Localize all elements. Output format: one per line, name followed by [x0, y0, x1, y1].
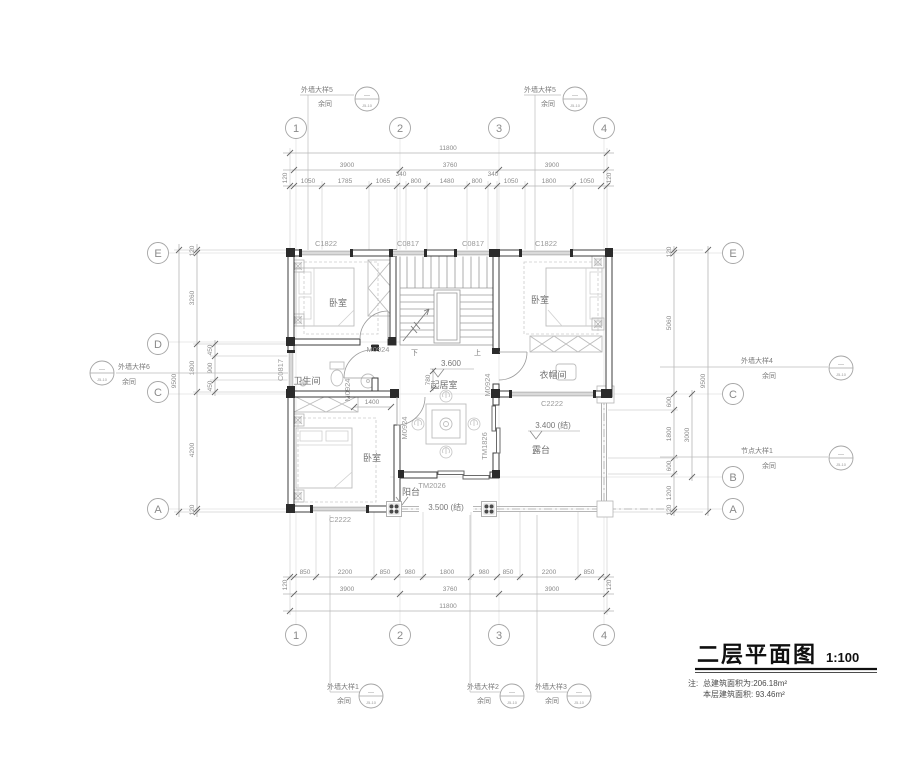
- drawing-title: 二层平面图: [697, 642, 817, 667]
- grid-row-label: A: [154, 504, 162, 516]
- notes-line1: 总建筑面积为:206.18m²: [703, 678, 787, 688]
- ref-bottom: J5-10: [507, 700, 518, 705]
- room-label-living: 起居室: [430, 379, 457, 390]
- dim-value: 1800: [542, 178, 557, 185]
- window-code: C0817: [276, 359, 285, 381]
- door-bedroom2: [499, 352, 527, 380]
- grid-row-label: E: [729, 248, 736, 260]
- dim-value: 1065: [376, 178, 391, 185]
- room-label-bedroom3: 卧室: [363, 452, 381, 463]
- dim-value: 11800: [439, 145, 457, 152]
- stair-down-label: 下: [411, 349, 418, 357]
- ref-bottom: J5-10: [836, 462, 847, 467]
- grid-col-label: 2: [397, 123, 403, 135]
- dim-value: 600: [666, 460, 673, 471]
- level-value: 3.500 (结): [428, 502, 464, 512]
- ref-bottom: J5-10: [362, 103, 373, 108]
- notes-line2: 本层建筑面积: 93.46m²: [703, 689, 785, 699]
- ref-top: —: [99, 367, 105, 373]
- notes-prefix: 注:: [688, 678, 698, 688]
- dim-value: 3900: [545, 586, 560, 593]
- dim-value: 1800: [440, 569, 455, 576]
- dim-value: 2200: [542, 569, 557, 576]
- drawing-scale: 1:100: [826, 650, 859, 665]
- dim-value: 3760: [443, 162, 458, 169]
- callout-wall4: 外墙大样4 余同 — J5-10: [660, 356, 853, 380]
- grid-row-label: B: [729, 472, 736, 484]
- grid-row-label: C: [154, 387, 162, 399]
- dim-value: 3900: [545, 162, 560, 169]
- dim-value: 120: [189, 504, 196, 515]
- door-code: M0924: [367, 345, 390, 354]
- floor-plan-drawing: 11800 3900 3760 3900 1050 1785 1065 340 …: [0, 0, 899, 762]
- callout-wall2: 外墙大样2 余同 — J5-10: [467, 515, 524, 708]
- grid-col-label: 3: [496, 630, 502, 642]
- dim-value: 120: [666, 504, 673, 515]
- room-label-terrace: 露台: [532, 444, 550, 455]
- terrace-corner-column: [597, 501, 613, 517]
- window-c1822-a: [299, 249, 353, 257]
- dim-value: 340: [488, 171, 499, 178]
- left-dimensions: 120 3260 1800 4200 120 450 900 450 9500: [171, 245, 214, 515]
- dim-value: 3760: [443, 586, 458, 593]
- callout-repeat: 余同: [337, 696, 351, 705]
- chair: [468, 418, 480, 430]
- dim-value: 450: [207, 380, 214, 391]
- room-label-bedroom2: 卧室: [531, 294, 549, 305]
- callout-repeat: 余同: [477, 696, 491, 705]
- dim-value: 120: [606, 579, 613, 590]
- wardrobe1: [368, 260, 392, 316]
- window-code: C1822: [315, 239, 337, 248]
- stair-up-label: 上: [474, 348, 481, 357]
- dim-value: 120: [282, 579, 289, 590]
- ref-bottom: J5-10: [836, 372, 847, 377]
- dim-value: 980: [405, 569, 416, 576]
- callout-wall1: 外墙大样1 余同 — J5-10: [327, 515, 383, 708]
- dim-value: 3000: [684, 427, 691, 442]
- dim-value: 1800: [666, 426, 673, 441]
- callout-repeat: 余同: [541, 99, 555, 108]
- ref-bottom: J5-10: [570, 103, 581, 108]
- grid-col-label: 1: [293, 630, 299, 642]
- dim-value: 780: [425, 374, 432, 385]
- dim-value: 800: [472, 178, 483, 185]
- window-code: C2222: [541, 399, 563, 408]
- ref-bottom: J5-10: [97, 377, 108, 382]
- dim-value: 120: [189, 245, 196, 256]
- room-label-cloakroom: 衣帽间: [539, 369, 566, 380]
- callout-label: 外墙大样2: [467, 682, 499, 691]
- window-c0817-a: [390, 249, 427, 257]
- door-code: M0924: [400, 417, 409, 440]
- grid-row-label: A: [729, 504, 737, 516]
- dim-value: 120: [282, 172, 289, 183]
- dim-value: 850: [380, 569, 391, 576]
- grid-col-label: 4: [601, 630, 607, 642]
- grid-col-label: 2: [397, 630, 403, 642]
- ornamental-column: [482, 502, 497, 517]
- window-c2222-bedroom3: [310, 505, 369, 513]
- dim-value: 2200: [338, 569, 353, 576]
- room-label-bathroom: 卫生间: [293, 375, 320, 386]
- ref-top: —: [572, 93, 578, 99]
- dim-value: 1200: [666, 485, 673, 500]
- ref-top: —: [576, 690, 582, 696]
- room-label-bedroom1: 卧室: [329, 297, 347, 308]
- callout-node1: 节点大样1 余同 — J5-10: [660, 446, 853, 470]
- chair: [440, 390, 452, 402]
- ornamental-column: [387, 502, 402, 517]
- wardrobe2: [530, 336, 602, 352]
- toilet: [330, 362, 344, 386]
- door-code: TM1826: [480, 432, 489, 460]
- dim-value: 9500: [171, 373, 178, 388]
- window-c2222-cloakroom: [509, 390, 596, 398]
- window-code: C0817: [397, 239, 419, 248]
- nightstand: [592, 256, 604, 268]
- dim-value: 3260: [189, 290, 196, 305]
- dim-value: 1480: [440, 178, 455, 185]
- callout-repeat: 余同: [545, 696, 559, 705]
- callout-label: 外墙大样5: [524, 85, 556, 94]
- level-balcony: 3.500 (结): [396, 497, 473, 512]
- level-marker-icon: [530, 431, 542, 439]
- dim-value: 980: [479, 569, 490, 576]
- callout-wall3: 外墙大样3 余同 — J5-10: [535, 515, 591, 708]
- grid-col-label: 3: [496, 123, 502, 135]
- window-code: C0817: [462, 239, 484, 248]
- grid-row-label: D: [154, 339, 162, 351]
- dim-value: 1050: [504, 178, 519, 185]
- ref-top: —: [368, 690, 374, 696]
- window-c1822-b: [519, 249, 573, 257]
- callout-repeat: 余同: [318, 99, 332, 108]
- callout-label: 外墙大样5: [301, 85, 333, 94]
- grid-row-label: C: [729, 389, 737, 401]
- dim-value: 5060: [666, 315, 673, 330]
- stair-direction-arrow: [403, 309, 429, 341]
- dim-value: 450: [207, 344, 214, 355]
- right-dimensions: 120 5060 600 1800 600 1200 120 3000 9500: [666, 246, 707, 515]
- living-table: [426, 404, 466, 444]
- dim-value: 1785: [338, 178, 353, 185]
- dim-value: 850: [503, 569, 514, 576]
- door-code: M0924: [343, 379, 352, 402]
- ref-top: —: [364, 93, 370, 99]
- grid-col-label: 4: [601, 123, 607, 135]
- dim-value: 900: [207, 362, 214, 373]
- level-value: 3.400 (结): [535, 420, 571, 430]
- dim-value: 340: [396, 171, 407, 178]
- dim-value: 1400: [365, 399, 380, 406]
- dim-value: 1050: [580, 178, 595, 185]
- callout-label: 外墙大样4: [741, 356, 773, 365]
- bottom-dimensions: 850 2200 850 980 1800 980 850 2200 850 1…: [282, 569, 613, 610]
- ref-bottom: J5-10: [574, 700, 585, 705]
- callout-label: 外墙大样6: [118, 362, 150, 371]
- door-code: M0924: [483, 374, 492, 397]
- top-dimensions: 11800 3900 3760 3900 1050 1785 1065 340 …: [282, 145, 613, 185]
- dim-value: 3900: [340, 162, 355, 169]
- stairs: 下 上: [400, 256, 493, 357]
- dim-value: 800: [411, 178, 422, 185]
- dim-value: 600: [666, 396, 673, 407]
- callout-label: 节点大样1: [741, 446, 773, 455]
- grid-col-label: 1: [293, 123, 299, 135]
- ref-top: —: [509, 690, 515, 696]
- dim-value: 850: [584, 569, 595, 576]
- title-block: 二层平面图 1:100 注: 总建筑面积为:206.18m² 本层建筑面积: 9…: [688, 642, 877, 699]
- dim-value: 120: [666, 246, 673, 257]
- chair: [440, 446, 452, 458]
- floor-plan-sheet: 11800 3900 3760 3900 1050 1785 1065 340 …: [0, 0, 899, 762]
- callout-repeat: 余同: [762, 371, 776, 380]
- level-terrace: 3.400 (结): [528, 420, 580, 439]
- dim-value: 11800: [439, 603, 457, 610]
- grid-row-label: E: [154, 248, 161, 260]
- window-c0817-b: [454, 249, 492, 257]
- ref-top: —: [838, 362, 844, 368]
- dim-value: 4200: [189, 442, 196, 457]
- door-tm2026: [438, 471, 489, 479]
- callout-label: 外墙大样1: [327, 682, 359, 691]
- door-bedroom1: [360, 311, 388, 339]
- dim-value: 3900: [340, 586, 355, 593]
- dim-value: 9500: [700, 373, 707, 388]
- door-code: TM2026: [418, 481, 446, 490]
- ref-bottom: J5-10: [366, 700, 377, 705]
- window-code: C1822: [535, 239, 557, 248]
- callout-label: 外墙大样3: [535, 682, 567, 691]
- callout-repeat: 余同: [762, 461, 776, 470]
- level-living: 3.600: [430, 359, 474, 377]
- dim-value: 120: [606, 172, 613, 183]
- dim-value: 850: [300, 569, 311, 576]
- level-value: 3.600: [441, 359, 462, 368]
- ref-top: —: [838, 452, 844, 458]
- window-code: C2222: [329, 515, 351, 524]
- callout-repeat: 余同: [122, 377, 136, 386]
